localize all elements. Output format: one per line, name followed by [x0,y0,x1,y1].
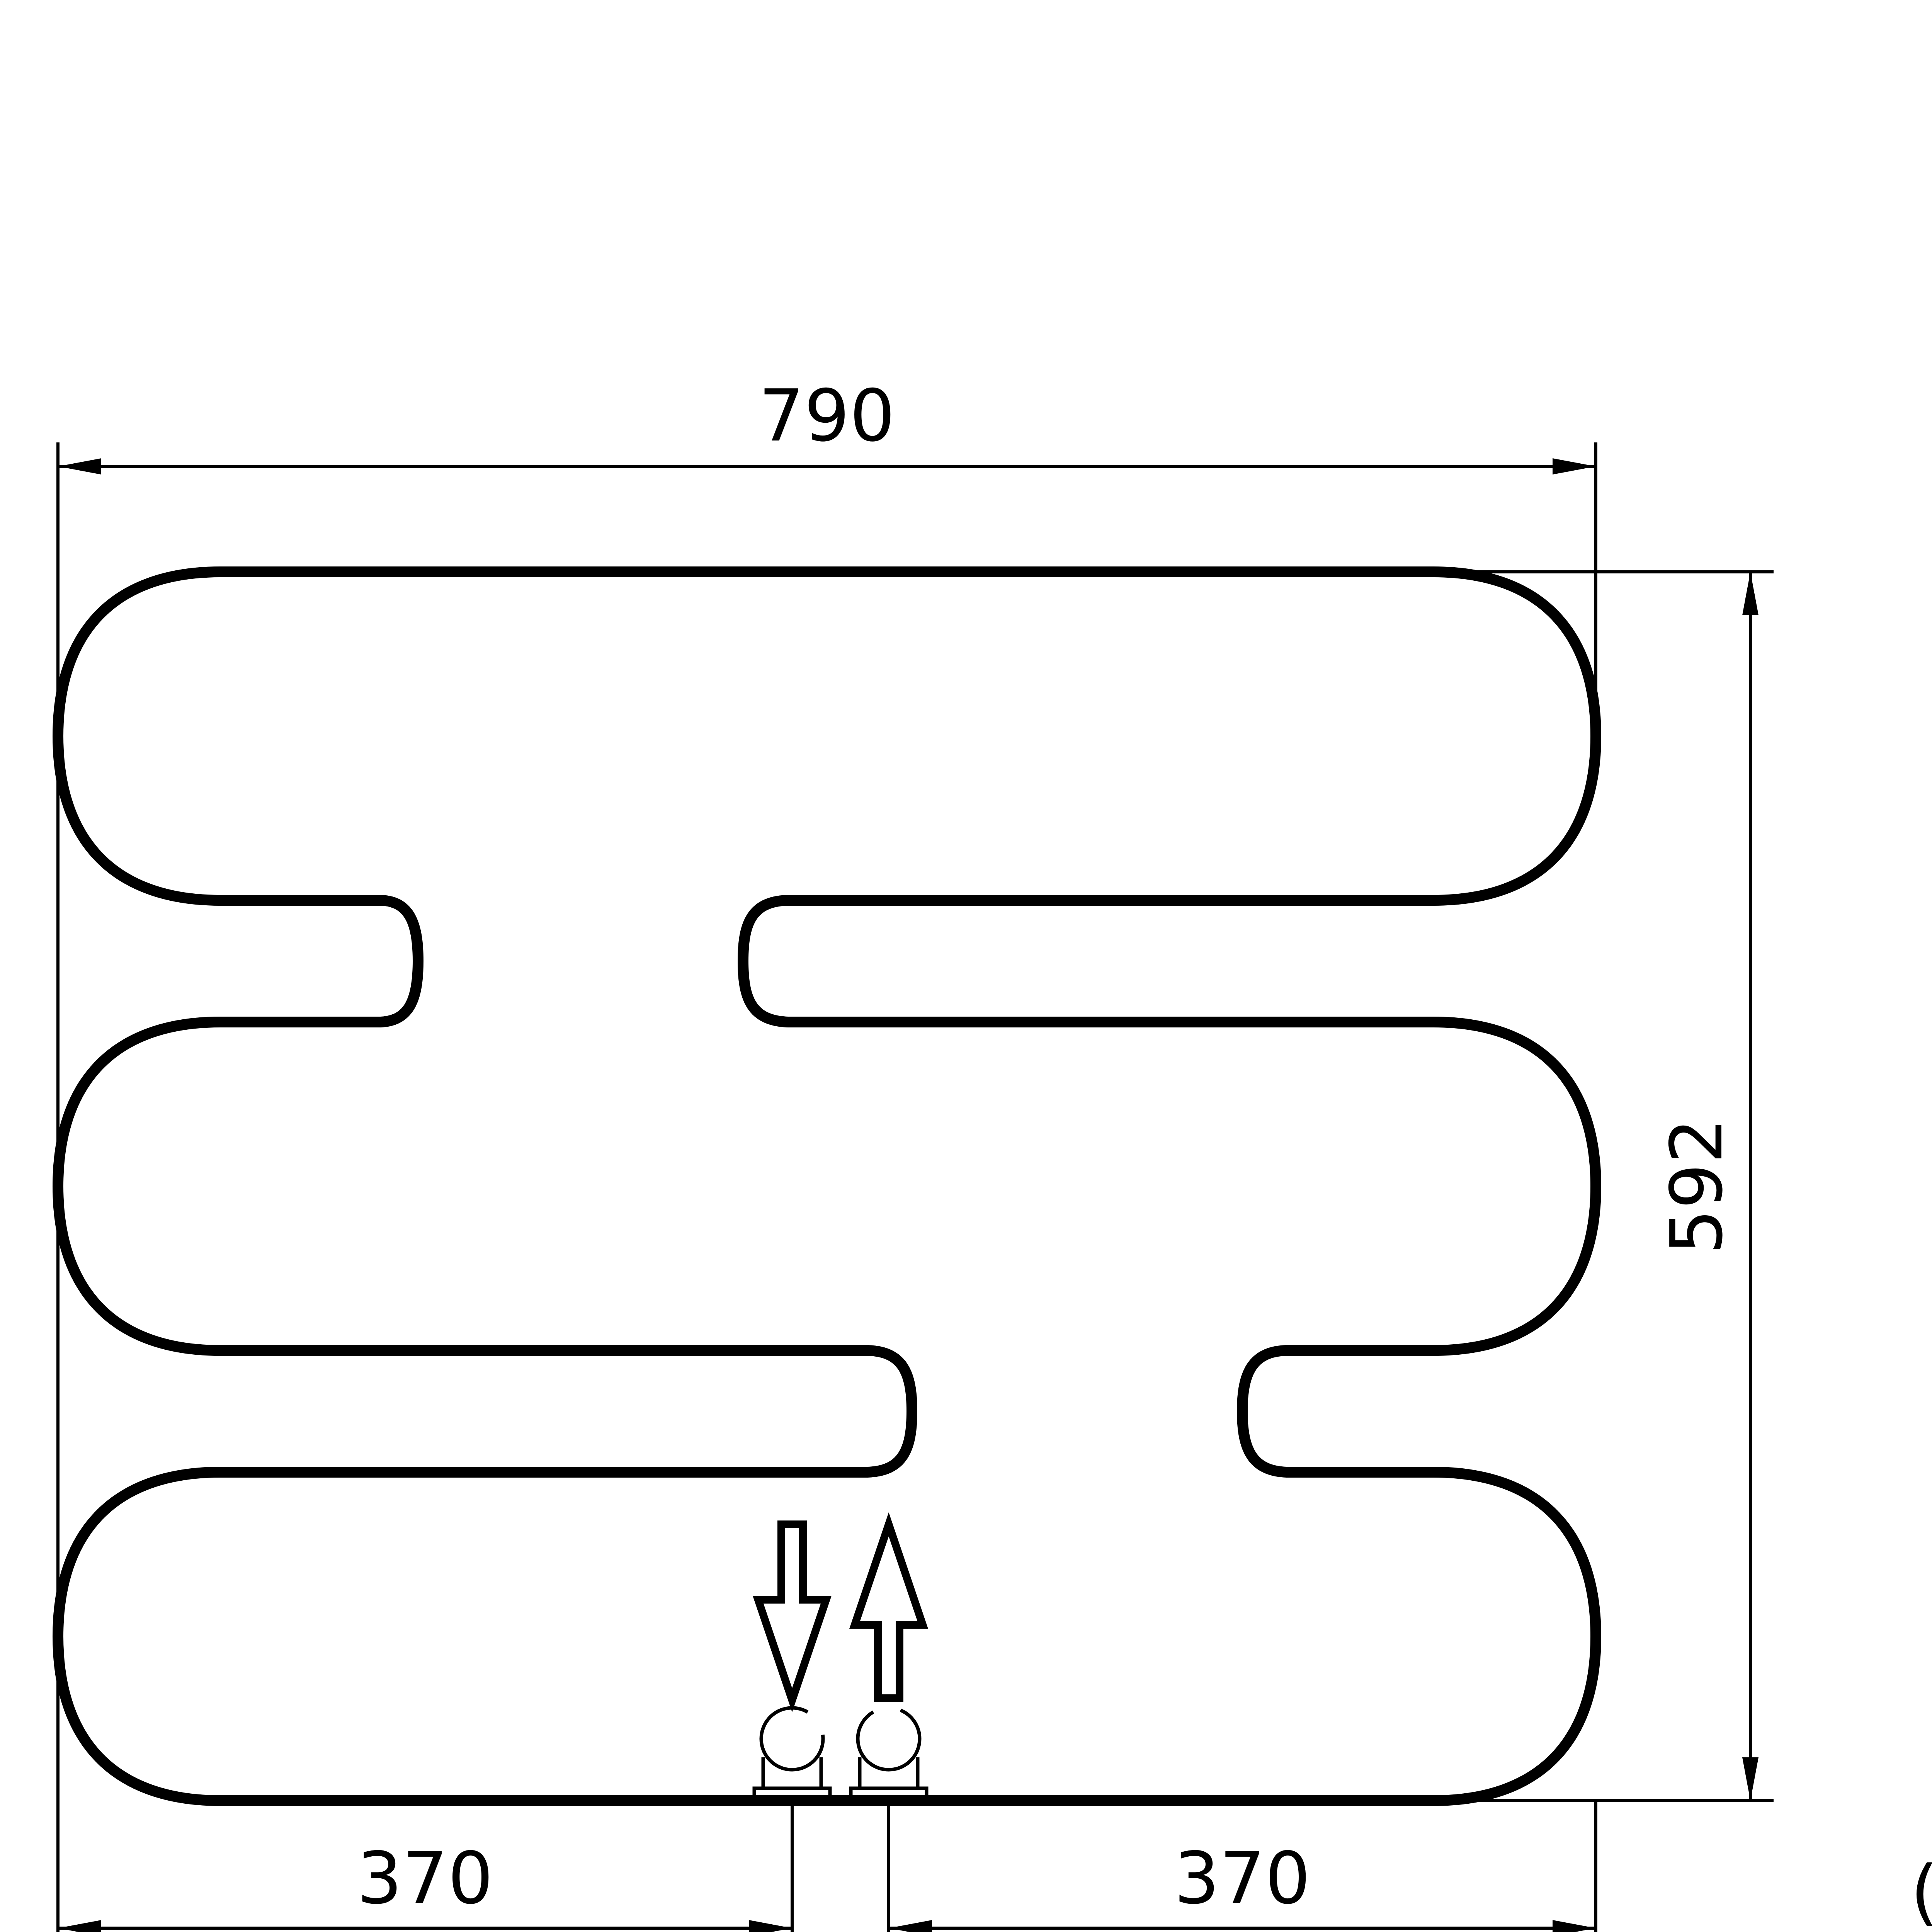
dim-right-offset: 370 [889,1801,1596,1932]
dim-height-label: 592 [1655,1118,1738,1254]
radiator-technical-drawing: 790 592 370 370 [0,0,1932,1932]
radiator-outline [58,572,1596,1801]
dim-width-label: 790 [759,374,895,457]
dim-wall-distance-bottom-label: (27-51) [1910,1850,1932,1932]
dim-arrow-down-icon [1742,1757,1759,1801]
dim-right-offset-label: 370 [1174,1837,1310,1920]
dim-arrow-right-icon [1553,458,1596,474]
dim-arrow-up-icon [1742,572,1759,615]
dim-arrow-left-icon [58,458,101,474]
side-view: (59-83) (27-51) [1910,345,1932,1932]
technical-drawing-page: 790 592 370 370 [0,0,1932,1932]
dim-left-offset: 370 [58,1801,792,1932]
dim-left-offset-label: 370 [357,1837,493,1920]
dim-wall-distance-bottom: (27-51) [1910,1807,1932,1932]
front-view: 790 592 370 370 [58,374,1774,1932]
